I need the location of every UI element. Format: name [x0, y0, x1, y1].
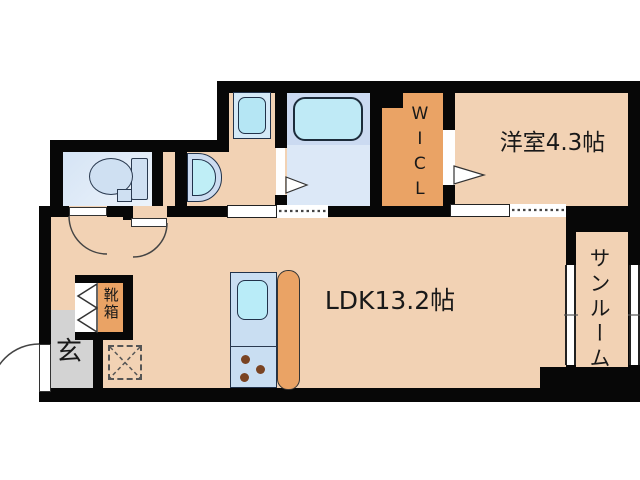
stove-burner — [256, 365, 265, 374]
wall — [275, 93, 287, 148]
kitchen-sink — [237, 280, 268, 320]
stove-burner — [240, 373, 249, 382]
sliding-door-western — [450, 204, 510, 217]
wicl-door-opening — [444, 130, 454, 185]
wall — [39, 206, 69, 217]
wall — [370, 93, 382, 206]
wall — [175, 150, 187, 206]
door-swing-arc — [0, 344, 39, 392]
room-label-ldk: LDK13.2帖 — [300, 288, 480, 314]
kitchen-divider — [230, 346, 277, 347]
wall — [167, 206, 227, 217]
wall — [576, 216, 628, 232]
wall — [566, 365, 576, 390]
closet-label-wicl: WICL — [410, 104, 428, 204]
refrigerator-space — [108, 345, 142, 380]
wall — [39, 206, 51, 346]
wall — [152, 150, 163, 206]
room-label-entrance: 玄 — [56, 339, 82, 366]
door-leaf-hall — [131, 218, 167, 227]
sliding-door-track — [510, 204, 566, 217]
stove-burner — [241, 355, 250, 364]
bathtub — [293, 97, 363, 141]
toilet-tank — [131, 158, 148, 200]
door-leaf-toilet — [69, 207, 107, 216]
floor-plan: LDK13.2帖 洋室4.3帖 サンルーム WICL 玄 靴箱 — [0, 0, 640, 480]
sliding-door-washroom — [227, 205, 277, 218]
room-label-western: 洋室4.3帖 — [460, 131, 640, 155]
wall — [382, 93, 403, 108]
window-sunroom-inner — [565, 265, 576, 365]
window-sunroom-outer — [629, 265, 640, 365]
entrance-door-leaf — [39, 344, 51, 392]
fixture-label-shoebox: 靴箱 — [102, 287, 118, 321]
room-label-sunroom: サンルーム — [588, 247, 610, 372]
kitchen-counter — [277, 270, 300, 390]
washing-machine — [238, 97, 266, 134]
bathroom-door-opening — [276, 148, 285, 195]
sliding-door-track — [277, 205, 328, 218]
room-wicl-lower — [382, 108, 403, 206]
bifold-door-zone — [75, 283, 98, 332]
wall — [217, 81, 229, 152]
wall — [217, 81, 640, 93]
toilet-flush — [117, 189, 132, 202]
wall — [328, 206, 450, 217]
wall — [443, 185, 455, 206]
wall — [443, 93, 455, 130]
wall — [93, 335, 103, 390]
wall — [566, 206, 576, 265]
wall — [50, 140, 229, 152]
